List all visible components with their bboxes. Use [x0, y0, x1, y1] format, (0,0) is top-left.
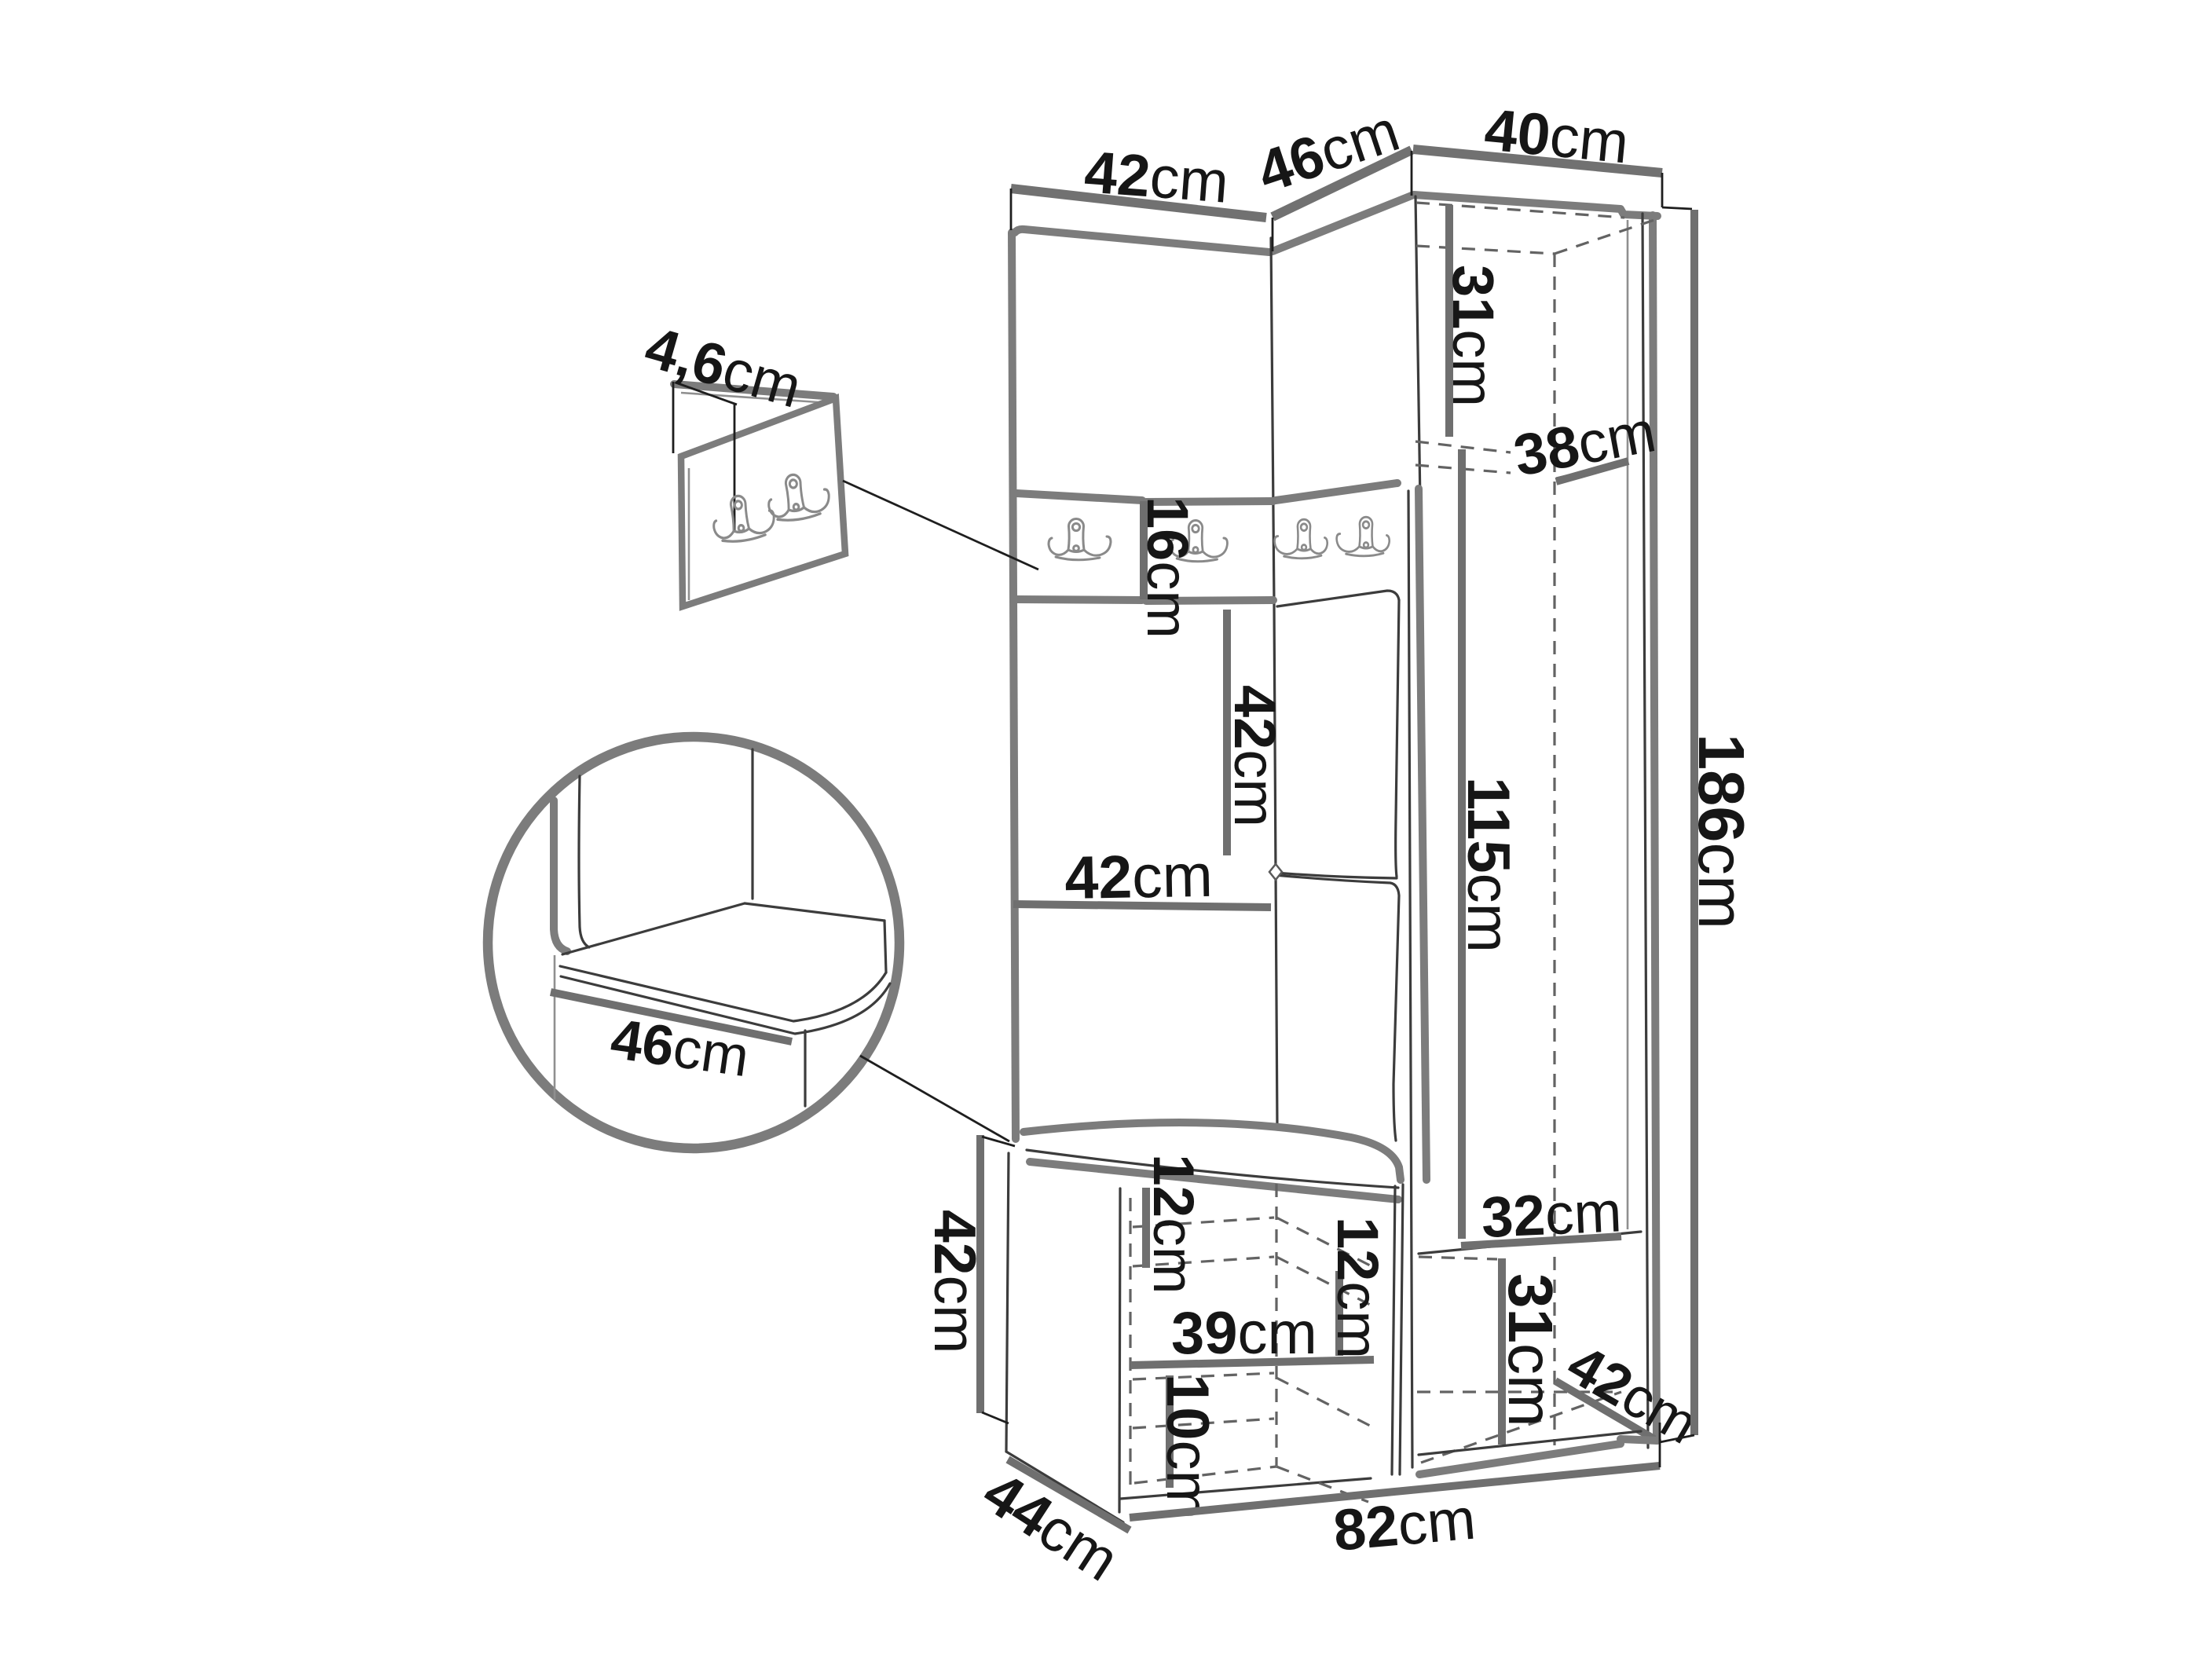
svg-text:40cm: 40cm: [1481, 96, 1632, 175]
svg-text:39cm: 39cm: [1171, 1300, 1317, 1367]
svg-text:12cm: 12cm: [1141, 1154, 1205, 1295]
svg-text:42cm: 42cm: [1082, 138, 1231, 215]
svg-text:42cm: 42cm: [1064, 842, 1214, 912]
svg-text:31cm: 31cm: [1496, 1273, 1566, 1427]
svg-text:12cm: 12cm: [1325, 1217, 1390, 1359]
svg-text:42cm: 42cm: [1222, 685, 1287, 827]
svg-text:42cm: 42cm: [922, 1210, 988, 1353]
svg-text:16cm: 16cm: [1135, 496, 1200, 639]
svg-text:31cm: 31cm: [1441, 265, 1506, 407]
svg-text:82cm: 82cm: [1331, 1485, 1478, 1562]
svg-text:32cm: 32cm: [1480, 1180, 1623, 1250]
svg-text:186cm: 186cm: [1685, 734, 1758, 929]
svg-text:115cm: 115cm: [1455, 777, 1522, 953]
svg-text:10cm: 10cm: [1154, 1374, 1221, 1520]
